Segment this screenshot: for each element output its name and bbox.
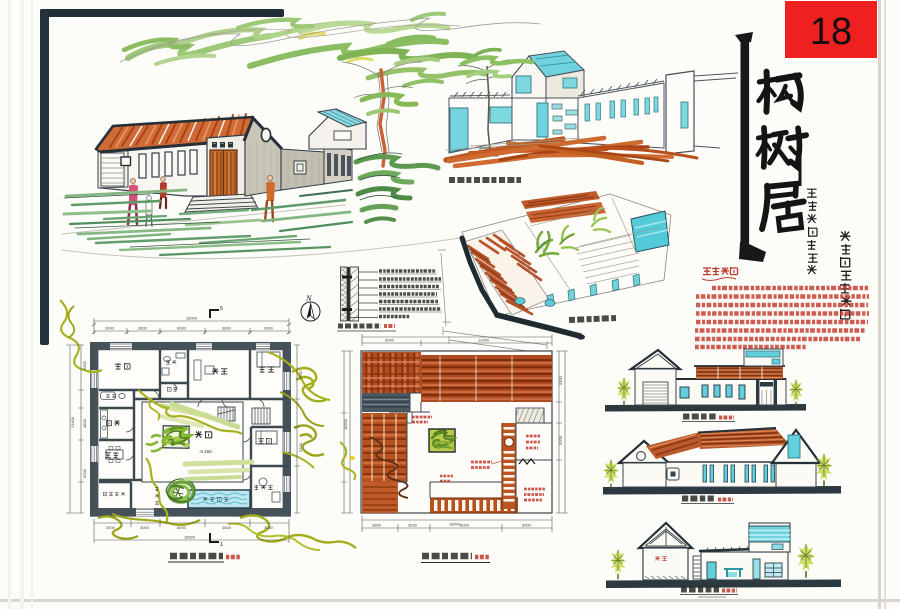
svg-text:5700: 5700 bbox=[298, 442, 303, 452]
svg-text:9200: 9200 bbox=[558, 435, 563, 445]
svg-text:4800: 4800 bbox=[82, 418, 87, 428]
svg-text:6000: 6000 bbox=[177, 326, 187, 331]
svg-text:18: 18 bbox=[810, 11, 852, 53]
svg-text:6000: 6000 bbox=[82, 360, 87, 370]
svg-text:3000: 3000 bbox=[522, 523, 532, 528]
svg-text:3600: 3600 bbox=[138, 326, 148, 331]
svg-text:6000: 6000 bbox=[82, 468, 87, 478]
svg-text:-0.150: -0.150 bbox=[199, 449, 212, 454]
svg-text:1: 1 bbox=[220, 542, 223, 548]
svg-text:6000: 6000 bbox=[385, 338, 395, 343]
svg-text:8000: 8000 bbox=[460, 523, 470, 528]
svg-text:4800: 4800 bbox=[222, 525, 232, 530]
svg-text:7800: 7800 bbox=[298, 370, 303, 380]
svg-text:3000: 3000 bbox=[264, 326, 274, 331]
svg-text:6000: 6000 bbox=[177, 525, 187, 530]
svg-text:3000: 3000 bbox=[264, 525, 274, 530]
svg-text:3000: 3000 bbox=[106, 525, 116, 530]
svg-text:5400: 5400 bbox=[558, 375, 563, 385]
svg-text:3000: 3000 bbox=[140, 525, 150, 530]
svg-text:16200: 16200 bbox=[343, 418, 348, 430]
svg-text:5: 5 bbox=[220, 306, 223, 312]
svg-text:18000: 18000 bbox=[184, 535, 196, 540]
svg-text:12000: 12000 bbox=[478, 338, 490, 343]
svg-text:3000: 3000 bbox=[105, 326, 115, 331]
svg-text:3600: 3600 bbox=[222, 326, 232, 331]
svg-text:3800: 3800 bbox=[372, 523, 382, 528]
svg-text:21600: 21600 bbox=[70, 416, 75, 428]
svg-text:3000: 3000 bbox=[408, 523, 418, 528]
svg-text:18000: 18000 bbox=[186, 316, 198, 321]
